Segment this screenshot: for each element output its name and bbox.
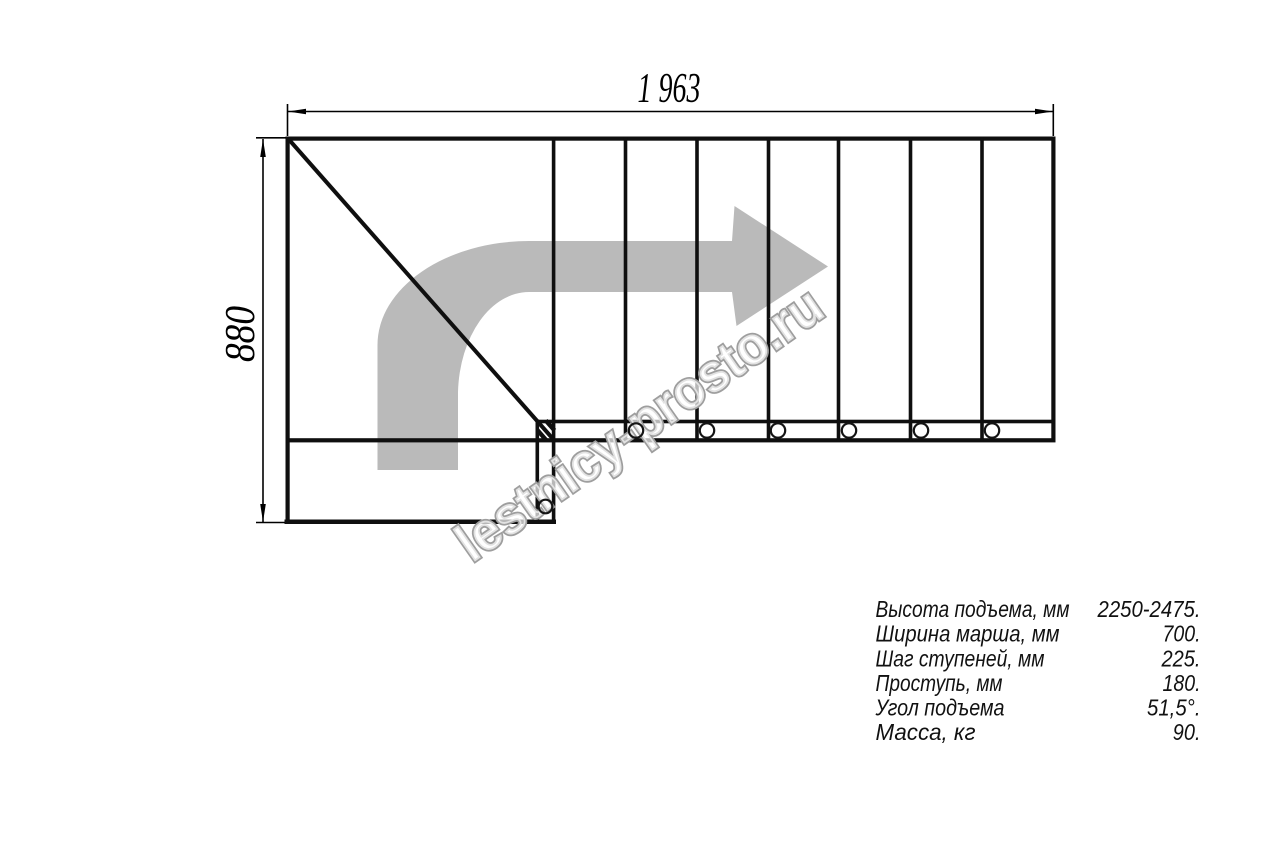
svg-text:Ширина марша, мм: Ширина марша, мм — [876, 621, 1060, 647]
svg-text:Шаг ступеней, мм: Шаг ступеней, мм — [876, 645, 1045, 671]
svg-text:2250-2475.: 2250-2475. — [1097, 596, 1201, 622]
svg-text:1 963: 1 963 — [638, 66, 701, 112]
svg-text:880: 880 — [218, 306, 264, 362]
svg-text:51,5°.: 51,5°. — [1147, 695, 1201, 721]
svg-text:225.: 225. — [1161, 645, 1201, 671]
svg-text:180.: 180. — [1163, 670, 1201, 696]
svg-text:Угол подъема: Угол подъема — [875, 695, 1005, 721]
svg-text:90.: 90. — [1173, 719, 1201, 745]
svg-text:Проступь, мм: Проступь, мм — [876, 670, 1003, 696]
svg-text:Масса, кг: Масса, кг — [876, 719, 976, 745]
svg-text:700.: 700. — [1163, 621, 1201, 647]
svg-text:Высота подъема, мм: Высота подъема, мм — [876, 596, 1070, 622]
